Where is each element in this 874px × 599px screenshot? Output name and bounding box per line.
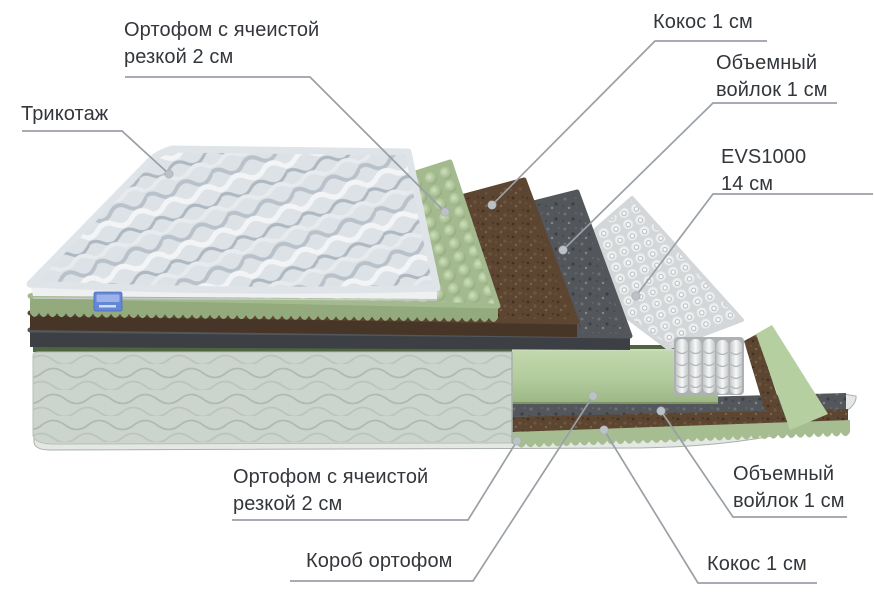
leader-dot <box>589 392 597 400</box>
label-ortofom-top-line1: Ортофом с ячеистой <box>124 17 319 44</box>
label-voylok-top-line2: войлок 1 см <box>716 77 828 104</box>
label-kokos-top-line1: Кокос 1 см <box>653 9 753 36</box>
leader-dot <box>165 170 173 178</box>
label-ortofom-bottom: Ортофом с ячеистой резкой 2 см <box>233 464 428 518</box>
quilt-layer-top <box>30 149 437 300</box>
label-ortofom-bottom-line1: Ортофом с ячеистой <box>233 464 428 491</box>
mattress-body <box>33 352 512 444</box>
leader-dot <box>559 246 567 254</box>
label-voylok-top: Объемный войлок 1 см <box>716 50 828 104</box>
label-evs-line2: 14 см <box>721 171 806 198</box>
label-kokos-bottom-line1: Кокос 1 см <box>707 551 807 578</box>
leader-dot <box>441 208 449 216</box>
label-korob-line1: Короб ортофом <box>306 548 453 575</box>
leader-dot <box>513 437 521 445</box>
label-ortofom-top: Ортофом с ячеистой резкой 2 см <box>124 17 319 71</box>
label-kokos-top: Кокос 1 см <box>653 9 753 36</box>
label-voylok-top-line1: Объемный <box>716 50 828 77</box>
label-trikotazh-line1: Трикотаж <box>21 101 108 128</box>
label-ortofom-bottom-line2: резкой 2 см <box>233 491 428 518</box>
leader-dot <box>600 426 608 434</box>
label-voylok-bottom-line2: войлок 1 см <box>733 488 845 515</box>
leader-dot <box>657 407 665 415</box>
label-ortofom-top-line2: резкой 2 см <box>124 44 319 71</box>
label-voylok-bottom-line1: Объемный <box>733 461 845 488</box>
leader-dot <box>632 292 640 300</box>
label-evs: EVS1000 14 см <box>721 144 806 198</box>
leader-dot <box>488 201 496 209</box>
label-trikotazh: Трикотаж <box>21 101 108 128</box>
label-evs-line1: EVS1000 <box>721 144 806 171</box>
label-kokos-bottom: Кокос 1 см <box>707 551 807 578</box>
label-voylok-bottom: Объемный войлок 1 см <box>733 461 845 515</box>
brand-tag <box>94 292 122 311</box>
mattress-diagram: Ортофом с ячеистой резкой 2 см Трикотаж … <box>0 0 874 599</box>
label-korob: Короб ортофом <box>306 548 453 575</box>
